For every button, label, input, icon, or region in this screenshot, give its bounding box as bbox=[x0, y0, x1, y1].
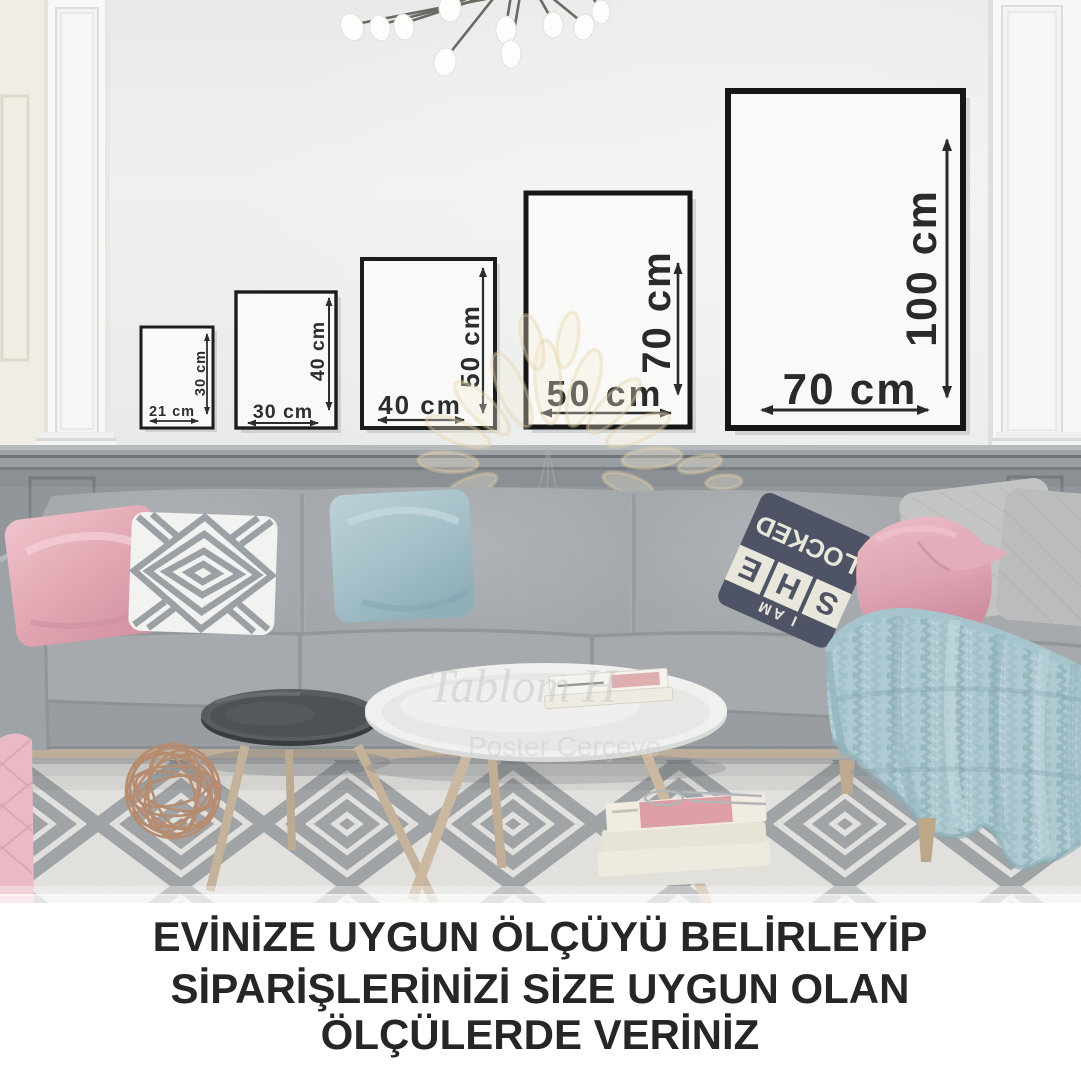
svg-text:50 cm: 50 cm bbox=[455, 304, 485, 388]
svg-text:100 cm: 100 cm bbox=[898, 189, 946, 347]
svg-text:ÖLÇÜLERDE VERİNİZ: ÖLÇÜLERDE VERİNİZ bbox=[321, 1011, 760, 1058]
svg-text:40 cm: 40 cm bbox=[378, 390, 462, 420]
svg-text:30 cm: 30 cm bbox=[253, 401, 313, 423]
svg-text:SİPARİŞLERİNİZİ SİZE UYGUN OLA: SİPARİŞLERİNİZİ SİZE UYGUN OLAN bbox=[171, 965, 910, 1012]
svg-text:EVİNİZE UYGUN ÖLÇÜYÜ BELİRLEYİ: EVİNİZE UYGUN ÖLÇÜYÜ BELİRLEYİP bbox=[153, 913, 928, 960]
svg-text:70 cm: 70 cm bbox=[783, 365, 918, 414]
svg-text:21 cm: 21 cm bbox=[149, 404, 195, 420]
svg-text:Poster Çerçeve: Poster Çerçeve bbox=[468, 731, 661, 762]
svg-text:70 cm: 70 cm bbox=[635, 250, 679, 373]
svg-text:Tablom H: Tablom H bbox=[428, 660, 619, 713]
svg-text:40 cm: 40 cm bbox=[307, 321, 329, 381]
